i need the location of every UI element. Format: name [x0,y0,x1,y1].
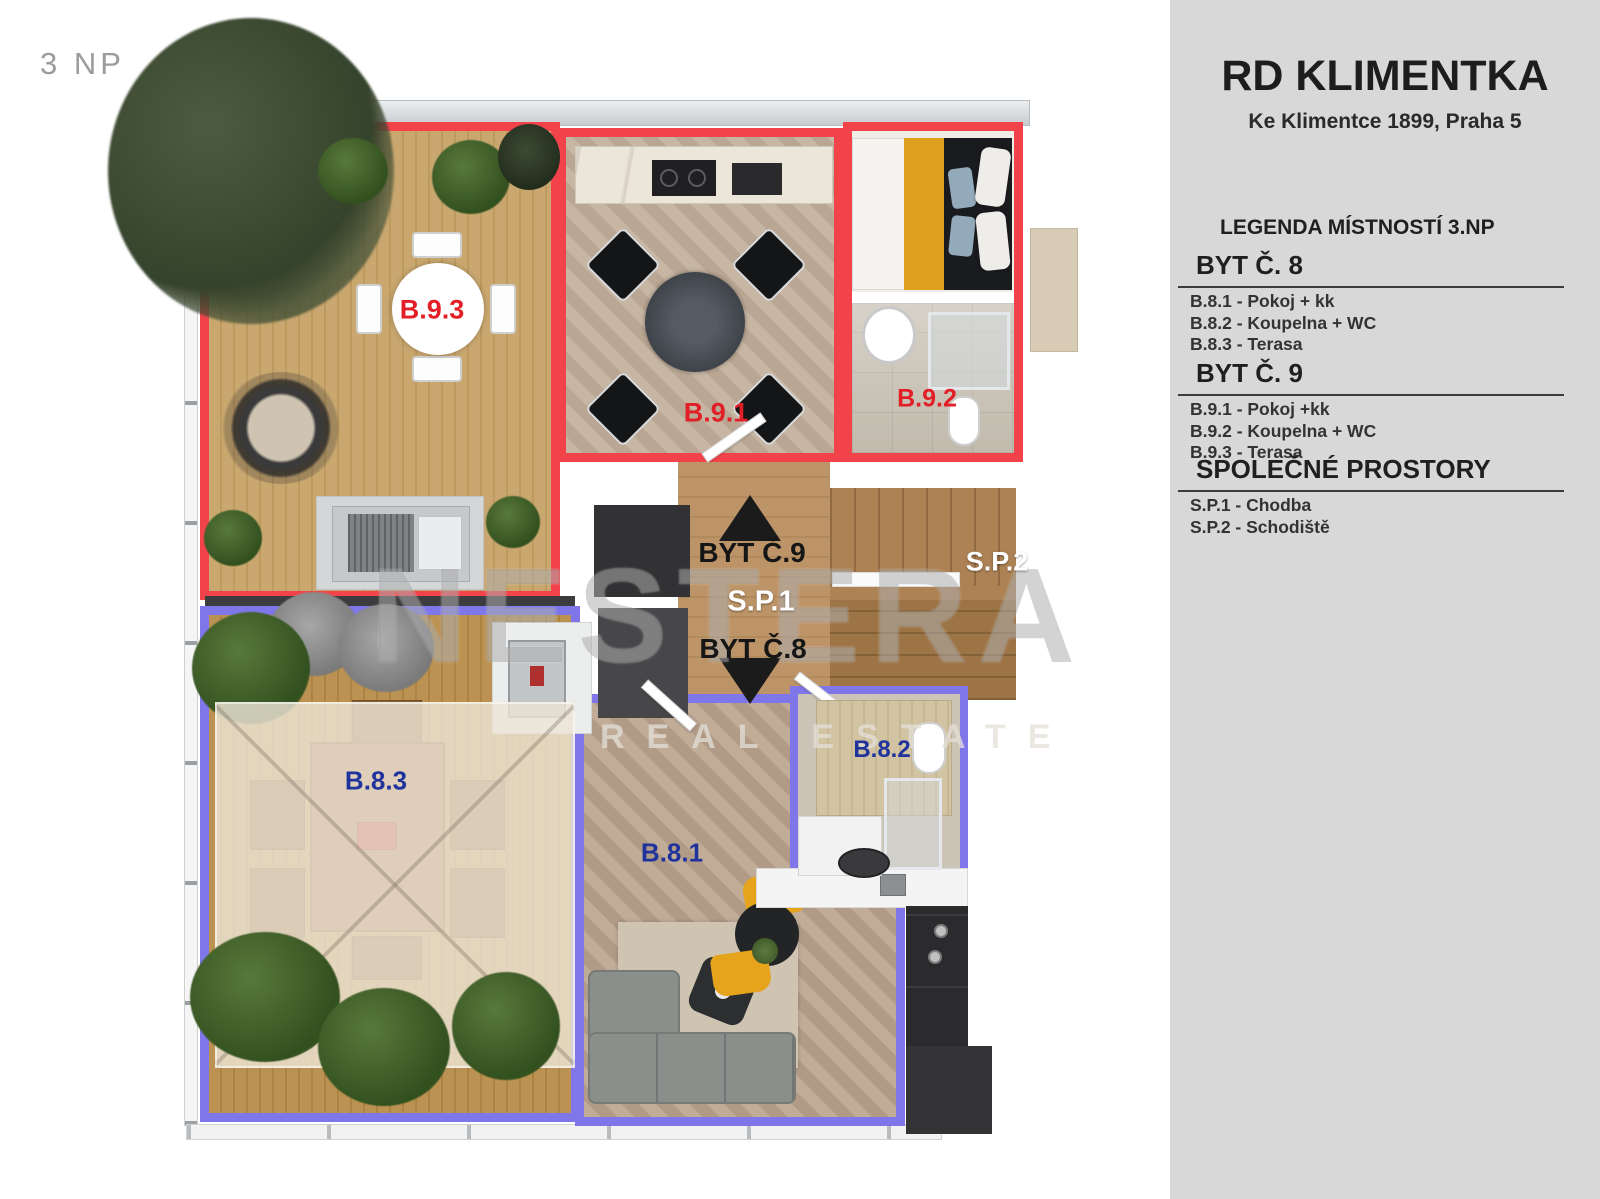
project-address: Ke Klimentce 1899, Praha 5 [1170,110,1600,134]
bathroom-wall [852,292,1014,304]
room-label-b83: B.8.3 [345,766,407,797]
room-label-b93: B.9.3 [400,295,465,326]
hall-label-byt8: BYT Č.8 [699,633,806,665]
terrace-chair [356,284,382,334]
hanging-egg-chair [218,372,344,484]
legend-section-byt9: BYT Č. 9 [1196,358,1303,389]
legend-items-common: S.P.1 - Chodba S.P.2 - Schodiště [1190,495,1330,538]
legend-item: B.8.1 - Pokoj + kk [1190,291,1376,313]
legend-section-byt8: BYT Č. 8 [1196,250,1303,281]
floorplan-page: 3 NP [0,0,1600,1199]
legend-item: S.P.1 - Chodba [1190,495,1330,517]
terrace-chair [412,232,462,258]
bush [204,510,262,566]
dark-bush [498,124,560,190]
appliance-knob [934,924,948,938]
watermark-tagline: REAL ESTATE [600,718,1072,757]
dining-table [645,272,745,372]
bush [318,988,450,1106]
pillow [975,211,1011,272]
sink [862,306,916,364]
section-divider [1178,490,1564,492]
legend-items-byt8: B.8.1 - Pokoj + kk B.8.2 - Koupelna + WC… [1190,291,1376,356]
arrow-up-icon [719,495,781,541]
legend-item: B.9.2 - Koupelna + WC [1190,421,1376,443]
shower [928,312,1010,390]
project-title: RD KLIMENTKA [1170,52,1600,101]
floor-number-label: 3 NP [40,46,125,82]
section-divider [1178,394,1564,396]
terrace-chair [490,284,516,334]
appliance-knob [928,950,942,964]
chimney-block [1030,228,1078,352]
legend-heading: LEGENDA MÍSTNOSTÍ 3.NP [1220,216,1495,240]
kitchen-sink [880,874,906,896]
section-divider [1178,286,1564,288]
sofa [588,1032,796,1104]
basin [838,848,890,878]
room-label-b92: B.9.2 [897,385,957,414]
terrace-chair [412,356,462,382]
pillow [948,215,976,257]
shower [884,778,942,870]
bush [452,972,560,1080]
kitchen-cabinet-end [906,1046,992,1134]
legend-sidebar: RD KLIMENTKA Ke Klimentce 1899, Praha 5 … [1170,0,1600,1199]
room-label-sp2: S.P.2 [966,547,1029,578]
legend-item: B.9.1 - Pokoj +kk [1190,399,1376,421]
room-label-b81: B.8.1 [641,838,703,869]
kitchen-module [732,163,782,195]
legend-item: S.P.2 - Schodiště [1190,517,1330,539]
legend-item: B.8.2 - Koupelna + WC [1190,313,1376,335]
bottom-balustrade [186,1124,942,1140]
room-label-b91: B.9.1 [684,398,749,429]
bed-yellow-throw [904,138,944,290]
bush [318,138,388,204]
cooktop [652,160,716,196]
room-label-sp1: S.P.1 [727,586,794,619]
hall-label-byt9: BYT Č.9 [698,537,805,569]
plant [752,938,778,964]
room-label-b82: B.8.2 [853,736,910,764]
legend-section-common: SPOLEČNÉ PROSTORY [1196,454,1491,485]
legend-item: B.8.3 - Terasa [1190,334,1376,356]
